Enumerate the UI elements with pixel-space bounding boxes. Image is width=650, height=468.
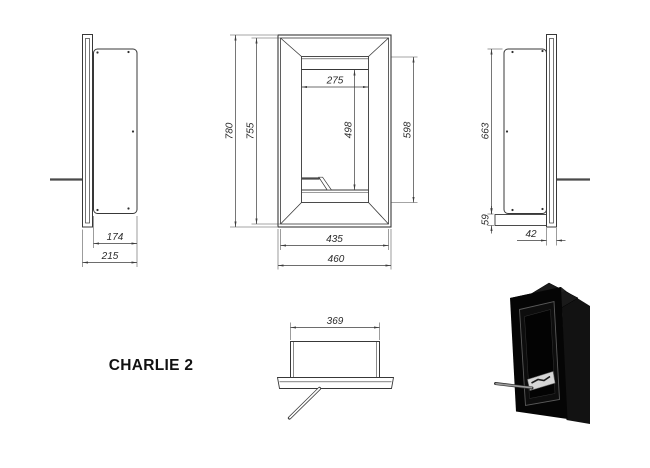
dim-755: 755 bbox=[246, 38, 281, 224]
dim-435: 435 bbox=[281, 229, 389, 250]
product-photo bbox=[496, 283, 591, 424]
dim-369: 369 bbox=[291, 316, 380, 340]
dim-42: 42 bbox=[517, 228, 566, 246]
dim-59: 59 bbox=[481, 206, 495, 234]
dim-label-435: 435 bbox=[326, 234, 343, 245]
dim-label-174: 174 bbox=[107, 232, 124, 243]
screw-dot bbox=[506, 130, 508, 132]
dim-label-275: 275 bbox=[326, 76, 344, 87]
mount-plate bbox=[550, 39, 554, 224]
dim-label-780: 780 bbox=[225, 122, 236, 139]
screw-dot bbox=[541, 50, 543, 52]
mount-plate bbox=[86, 39, 90, 224]
screw-dot bbox=[511, 51, 513, 53]
frame-outer bbox=[278, 35, 391, 227]
dim-663: 663 bbox=[481, 49, 503, 214]
frame-plate-top bbox=[278, 378, 394, 389]
screw-dot bbox=[127, 51, 129, 53]
top-view: 369 bbox=[278, 316, 394, 418]
dim-label-59: 59 bbox=[481, 214, 492, 226]
screw-dot bbox=[127, 207, 129, 209]
screw-dot bbox=[96, 209, 98, 211]
body-panel bbox=[504, 49, 547, 214]
dim-label-663: 663 bbox=[481, 122, 492, 139]
screw-dot bbox=[96, 51, 98, 53]
product-title: CHARLIE 2 bbox=[109, 357, 194, 374]
dim-598: 598 bbox=[391, 57, 418, 203]
dim-label-215: 215 bbox=[101, 251, 119, 262]
tool-rod bbox=[290, 389, 320, 418]
dim-label-598: 598 bbox=[403, 121, 414, 138]
dim-label-369: 369 bbox=[327, 316, 344, 327]
side-view-left: 174 215 bbox=[50, 35, 137, 268]
bottom-flange bbox=[495, 215, 547, 226]
screw-dot bbox=[541, 208, 543, 210]
dim-label-460: 460 bbox=[328, 254, 345, 265]
dim-label-42: 42 bbox=[525, 229, 537, 240]
side-view-right: 663 59 42 bbox=[481, 35, 591, 246]
drawing-sheet: 174 215 780 755 bbox=[0, 0, 650, 468]
body-panel bbox=[94, 49, 138, 214]
body-box bbox=[291, 342, 380, 378]
technical-drawing: 174 215 780 755 bbox=[0, 0, 650, 468]
dim-label-498: 498 bbox=[344, 121, 355, 138]
screw-dot bbox=[511, 209, 513, 211]
front-view: 780 755 275 498 598 435 bbox=[225, 35, 418, 270]
screw-dot bbox=[132, 130, 134, 132]
dim-label-755: 755 bbox=[246, 122, 257, 139]
